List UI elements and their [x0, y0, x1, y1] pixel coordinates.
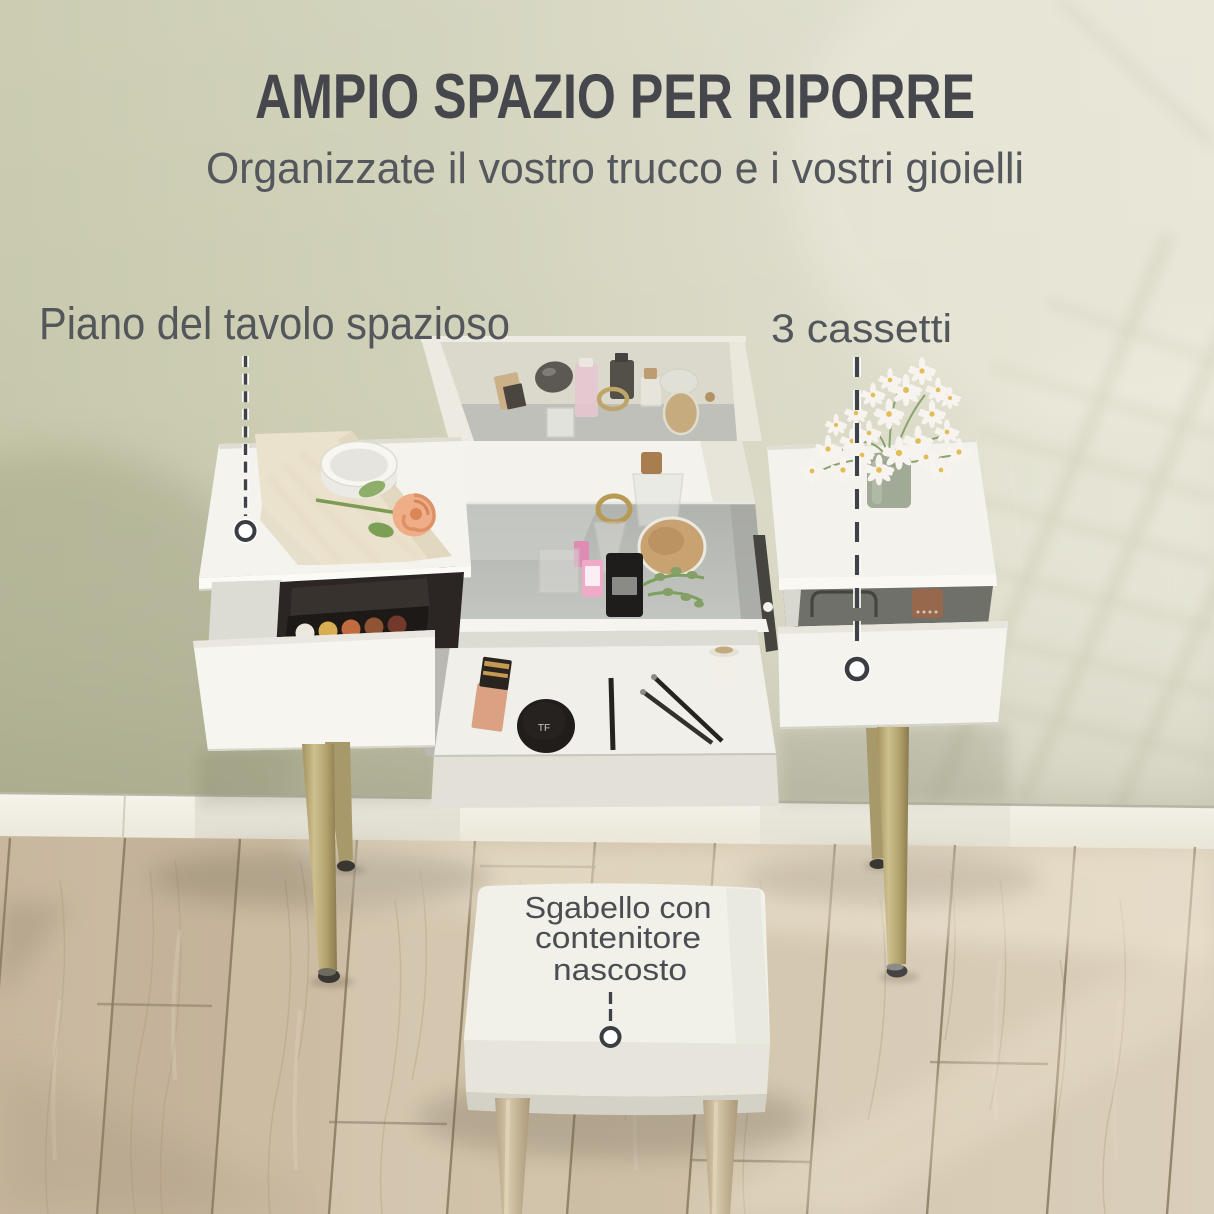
svg-text:AMPIO SPAZIO PER RIPORRE: AMPIO SPAZIO PER RIPORRE [255, 62, 975, 132]
svg-text:nascosto: nascosto [553, 952, 687, 987]
svg-text:Organizzate il vostro trucco e: Organizzate il vostro trucco e i vostri … [206, 144, 1024, 193]
svg-text:contenitore: contenitore [535, 920, 701, 955]
svg-text:TF: TF [538, 723, 550, 734]
svg-text:3 cassetti: 3 cassetti [771, 307, 952, 351]
svg-text:Piano del tavolo spazioso: Piano del tavolo spazioso [39, 298, 510, 349]
